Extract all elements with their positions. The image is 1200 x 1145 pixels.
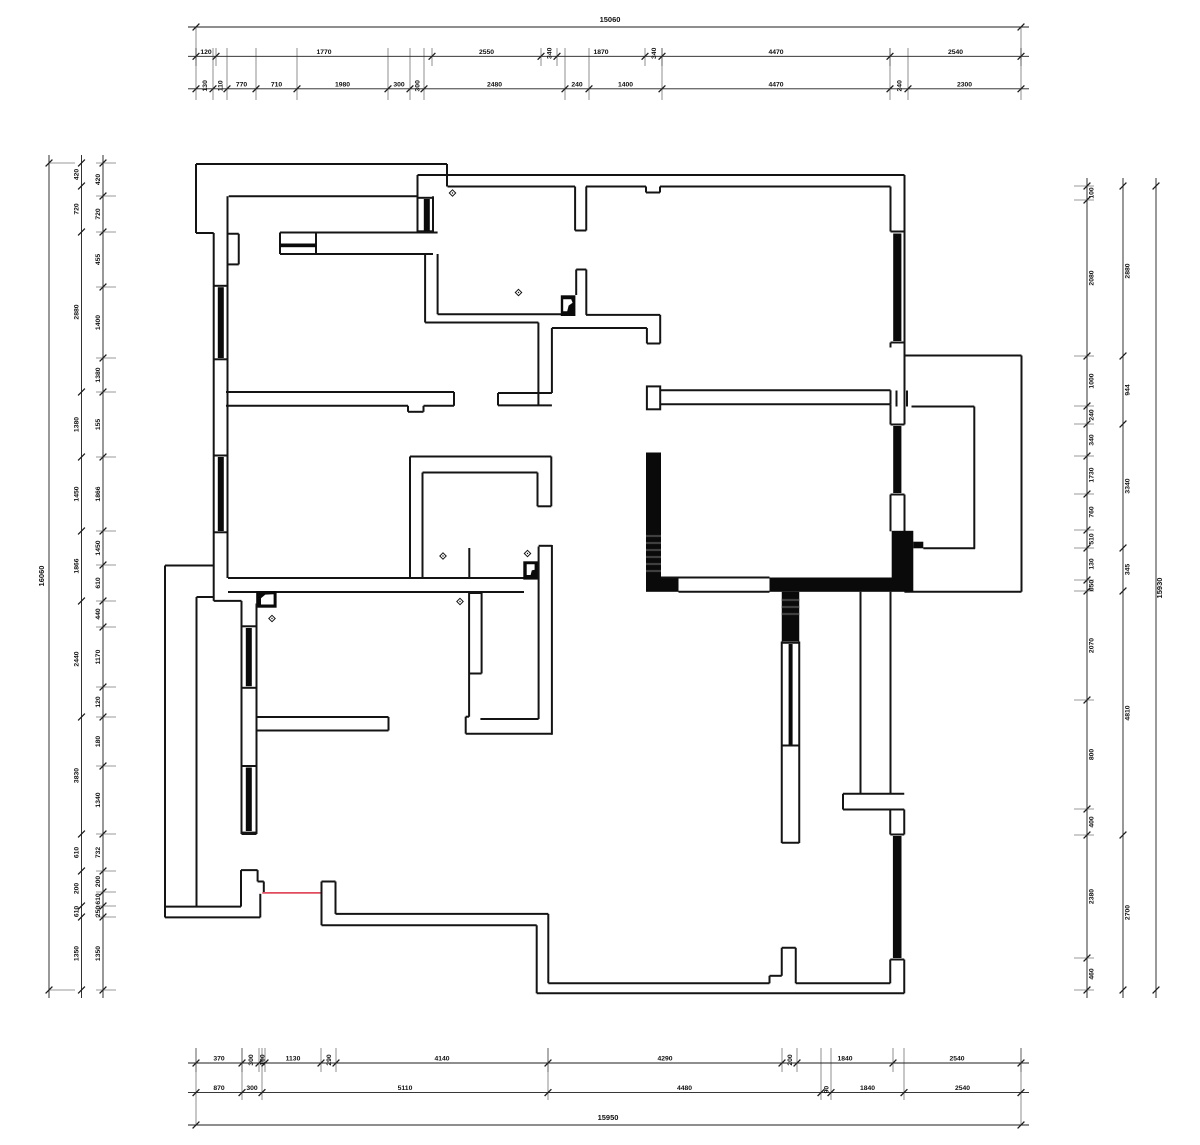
svg-text:130: 130: [1089, 558, 1096, 570]
svg-text:710: 710: [271, 81, 283, 88]
svg-text:4480: 4480: [677, 1085, 692, 1092]
svg-text:300: 300: [246, 1085, 258, 1092]
svg-text:2480: 2480: [487, 81, 502, 88]
svg-text:760: 760: [1089, 506, 1096, 518]
svg-text:1450: 1450: [95, 540, 102, 555]
svg-text:290: 290: [326, 1054, 333, 1066]
svg-text:340: 340: [547, 47, 554, 59]
svg-text:2380: 2380: [1089, 889, 1096, 904]
svg-text:300: 300: [248, 1054, 255, 1066]
svg-text:610: 610: [74, 906, 81, 918]
svg-text:345: 345: [1125, 564, 1132, 576]
svg-text:1000: 1000: [1089, 373, 1096, 388]
svg-text:720: 720: [74, 203, 81, 215]
svg-text:1170: 1170: [95, 649, 102, 664]
svg-text:1380: 1380: [95, 367, 102, 382]
svg-text:440: 440: [95, 608, 102, 620]
svg-text:110: 110: [218, 80, 225, 91]
svg-text:100: 100: [260, 1054, 267, 1066]
svg-text:240: 240: [897, 80, 904, 92]
svg-text:1350: 1350: [95, 946, 102, 961]
svg-text:15060: 15060: [600, 15, 621, 24]
svg-text:2540: 2540: [955, 1085, 970, 1092]
svg-text:420: 420: [74, 169, 81, 181]
svg-text:1350: 1350: [74, 946, 81, 961]
svg-text:455: 455: [95, 254, 102, 266]
svg-text:2880: 2880: [1125, 263, 1132, 278]
svg-text:1840: 1840: [860, 1085, 875, 1092]
svg-text:400: 400: [1089, 816, 1096, 828]
svg-text:1450: 1450: [74, 486, 81, 501]
svg-text:16060: 16060: [37, 566, 46, 587]
svg-text:1730: 1730: [1089, 467, 1096, 482]
svg-text:2880: 2880: [74, 304, 81, 319]
svg-text:130: 130: [202, 80, 209, 92]
svg-text:1340: 1340: [95, 792, 102, 807]
svg-text:5110: 5110: [398, 1085, 413, 1092]
svg-text:100: 100: [1089, 187, 1096, 199]
svg-text:4470: 4470: [768, 49, 783, 56]
svg-text:650: 650: [1089, 580, 1096, 592]
svg-text:1840: 1840: [837, 1056, 852, 1063]
svg-text:770: 770: [236, 81, 248, 88]
svg-text:2550: 2550: [479, 49, 494, 56]
svg-text:800: 800: [1089, 749, 1096, 761]
svg-text:15930: 15930: [1155, 578, 1164, 599]
svg-text:4470: 4470: [768, 81, 783, 88]
svg-text:4810: 4810: [1125, 705, 1132, 720]
svg-text:944: 944: [1125, 384, 1132, 396]
svg-text:870: 870: [213, 1085, 225, 1092]
svg-text:3830: 3830: [74, 768, 81, 783]
svg-text:4140: 4140: [434, 1056, 449, 1063]
svg-text:90: 90: [824, 1086, 831, 1094]
svg-text:1770: 1770: [316, 49, 331, 56]
svg-text:732: 732: [95, 847, 102, 859]
svg-text:610: 610: [95, 893, 102, 905]
svg-text:15950: 15950: [598, 1113, 619, 1122]
svg-text:340: 340: [1089, 434, 1096, 446]
svg-text:370: 370: [213, 1056, 225, 1063]
svg-text:1400: 1400: [95, 315, 102, 330]
svg-text:180: 180: [95, 736, 102, 748]
svg-text:250: 250: [95, 906, 102, 918]
svg-text:240: 240: [571, 81, 583, 88]
svg-text:120: 120: [200, 49, 212, 56]
svg-text:420: 420: [95, 174, 102, 186]
svg-text:300: 300: [415, 80, 422, 92]
svg-text:2300: 2300: [957, 81, 972, 88]
svg-text:460: 460: [1089, 968, 1096, 980]
svg-text:1866: 1866: [74, 558, 81, 573]
svg-text:200: 200: [787, 1054, 794, 1066]
svg-text:2700: 2700: [1125, 905, 1132, 920]
svg-text:1870: 1870: [593, 49, 608, 56]
svg-text:1866: 1866: [95, 486, 102, 501]
svg-text:240: 240: [1089, 409, 1096, 421]
svg-text:3340: 3340: [1125, 478, 1132, 493]
svg-text:2070: 2070: [1089, 638, 1096, 653]
svg-text:1380: 1380: [74, 417, 81, 432]
svg-text:610: 610: [95, 577, 102, 589]
svg-text:510: 510: [1089, 533, 1096, 545]
svg-text:340: 340: [651, 47, 658, 59]
svg-text:120: 120: [95, 696, 102, 708]
svg-text:200: 200: [95, 876, 102, 888]
svg-text:2540: 2540: [948, 49, 963, 56]
svg-text:2440: 2440: [74, 651, 81, 666]
svg-text:1130: 1130: [286, 1056, 301, 1063]
svg-text:155: 155: [95, 419, 102, 431]
svg-text:1980: 1980: [335, 81, 350, 88]
svg-text:1400: 1400: [618, 81, 633, 88]
svg-text:300: 300: [393, 81, 405, 88]
svg-text:720: 720: [95, 208, 102, 220]
svg-text:4290: 4290: [657, 1056, 672, 1063]
svg-text:2080: 2080: [1089, 270, 1096, 285]
svg-text:200: 200: [74, 883, 81, 895]
svg-text:610: 610: [74, 847, 81, 859]
svg-text:2540: 2540: [949, 1056, 964, 1063]
